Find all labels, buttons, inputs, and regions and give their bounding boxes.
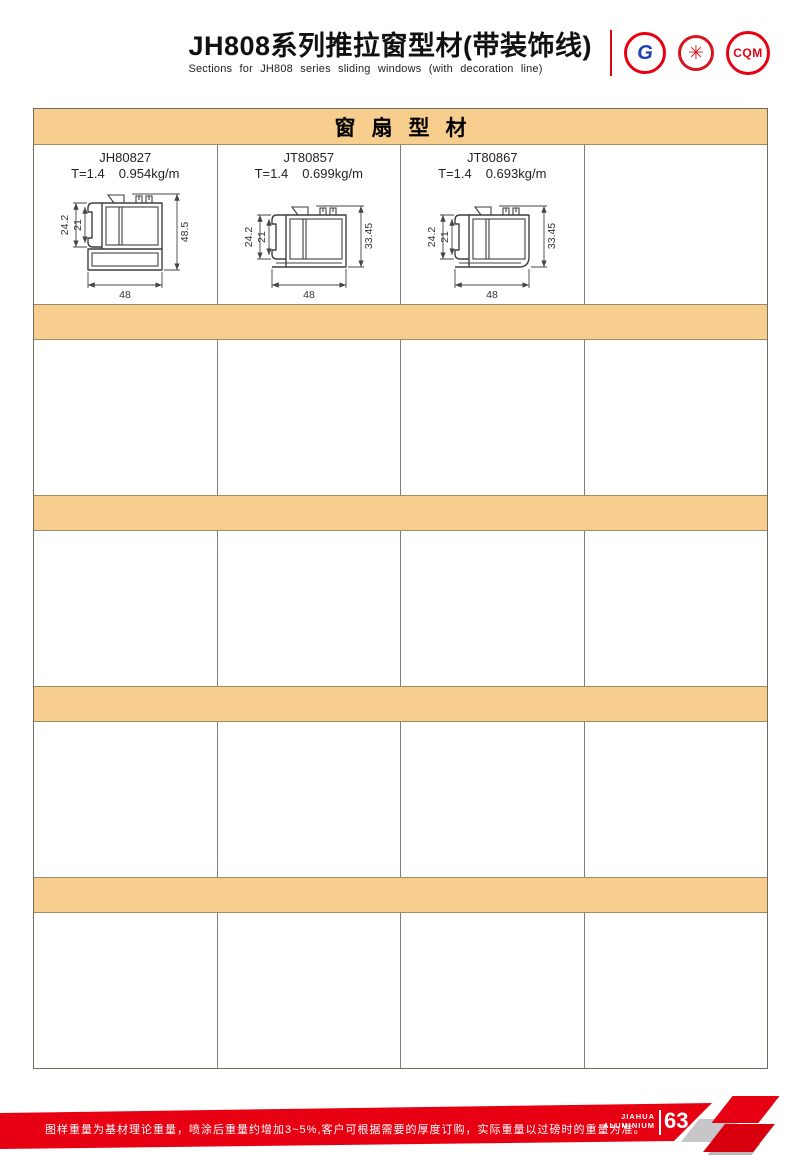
dim-label-width: 48	[119, 289, 131, 301]
dim-label-outer: 24.2	[59, 215, 71, 236]
seal-logo-glyph: ✳	[688, 42, 704, 65]
profile-drawing-jt80857: 24.2 21 33.45 48	[224, 181, 394, 303]
section-band	[34, 495, 767, 531]
empty-cell	[34, 531, 218, 686]
product-header: JT80857 T=1.40.699kg/m	[218, 145, 401, 181]
product-weight: 0.693kg/m	[486, 166, 547, 181]
empty-cell	[218, 913, 402, 1068]
brand-sub: ALUMINIUM	[585, 1121, 655, 1130]
dim-label-width: 48	[486, 289, 498, 301]
catalog-page: JH808系列推拉窗型材(带装饰线) Sections for JH808 se…	[0, 0, 800, 1167]
product-model: JT80867	[401, 150, 584, 165]
empty-cell	[218, 722, 402, 877]
title-block: JH808系列推拉窗型材(带装饰线) Sections for JH808 se…	[188, 31, 592, 75]
dim-label-outer: 24.2	[426, 227, 438, 248]
product-cell-jt80857: JT80857 T=1.40.699kg/m 24.2	[218, 145, 402, 304]
section-header-band: 窗扇型材	[34, 109, 767, 145]
empty-row	[34, 531, 767, 686]
section-band	[34, 877, 767, 913]
footer-note: 图样重量为基材理论重量，喷涂后重量约增加3~5%,客户可根据需要的厚度订购，实际…	[45, 1121, 605, 1137]
empty-cell	[218, 340, 402, 495]
empty-cell	[585, 531, 768, 686]
empty-row	[34, 722, 767, 877]
empty-cell	[218, 531, 402, 686]
header-divider	[610, 30, 612, 76]
brand-separator	[659, 1110, 661, 1135]
dim-label-height: 48.5	[179, 222, 191, 243]
empty-cell	[585, 340, 768, 495]
profile-drawing-jt80867: 24.2 21 33.45 48	[407, 181, 577, 303]
gb-certification-icon: G	[624, 32, 666, 74]
empty-cell	[34, 913, 218, 1068]
product-model: JT80857	[218, 150, 401, 165]
empty-cell	[401, 913, 585, 1068]
product-weight: 0.699kg/m	[302, 166, 363, 181]
product-thickness: T=1.4	[438, 166, 472, 181]
product-spec: T=1.40.954kg/m	[34, 166, 217, 181]
dim-label-inner: 21	[439, 231, 451, 243]
product-cell-jt80867: JT80867 T=1.40.693kg/m 24.2	[401, 145, 585, 304]
product-cell-empty	[585, 145, 768, 304]
brand-block: JIAHUA ALUMINIUM	[585, 1112, 655, 1131]
empty-row	[34, 340, 767, 495]
section-band	[34, 686, 767, 722]
empty-cell	[34, 340, 218, 495]
empty-cell	[585, 722, 768, 877]
product-header: JT80867 T=1.40.693kg/m	[401, 145, 584, 181]
dim-label-outer: 24.2	[243, 227, 255, 248]
gb-logo-glyph: G	[637, 42, 653, 65]
product-model: JH80827	[34, 150, 217, 165]
product-header: JH80827 T=1.40.954kg/m	[34, 145, 217, 181]
dim-label-height: 33.45	[363, 223, 375, 249]
dim-label-height: 33.45	[546, 223, 558, 249]
section-title: 窗扇型材	[319, 112, 483, 142]
product-spec: T=1.40.693kg/m	[401, 166, 584, 181]
product-cell-jh80827: JH80827 T=1.40.954kg/m	[34, 145, 218, 304]
empty-row	[34, 913, 767, 1068]
page-title: JH808系列推拉窗型材(带装饰线)	[188, 31, 592, 61]
dim-label-width: 48	[303, 289, 315, 301]
empty-cell	[34, 722, 218, 877]
quality-seal-icon: ✳	[678, 35, 714, 71]
product-spec: T=1.40.699kg/m	[218, 166, 401, 181]
dim-label-inner: 21	[72, 219, 84, 231]
cqm-logo-glyph: CQM	[733, 46, 763, 60]
product-row: JH80827 T=1.40.954kg/m	[34, 145, 767, 304]
empty-cell	[401, 340, 585, 495]
empty-cell	[585, 913, 768, 1068]
product-thickness: T=1.4	[71, 166, 105, 181]
product-weight: 0.954kg/m	[119, 166, 180, 181]
section-band	[34, 304, 767, 340]
cqm-certification-icon: CQM	[726, 31, 770, 75]
page-header: JH808系列推拉窗型材(带装饰线) Sections for JH808 se…	[0, 24, 800, 82]
page-subtitle: Sections for JH808 series sliding window…	[188, 63, 592, 75]
dim-label-inner: 21	[256, 231, 268, 243]
empty-cell	[401, 531, 585, 686]
profile-drawing-jh80827: 24.2 21 48.5 48	[40, 181, 210, 303]
product-thickness: T=1.4	[255, 166, 289, 181]
profile-table: 窗扇型材 JH80827 T=1.40.954kg/m	[33, 108, 768, 1069]
empty-cell	[401, 722, 585, 877]
page-number: 63	[664, 1108, 688, 1134]
brand-name: JIAHUA	[585, 1112, 655, 1121]
